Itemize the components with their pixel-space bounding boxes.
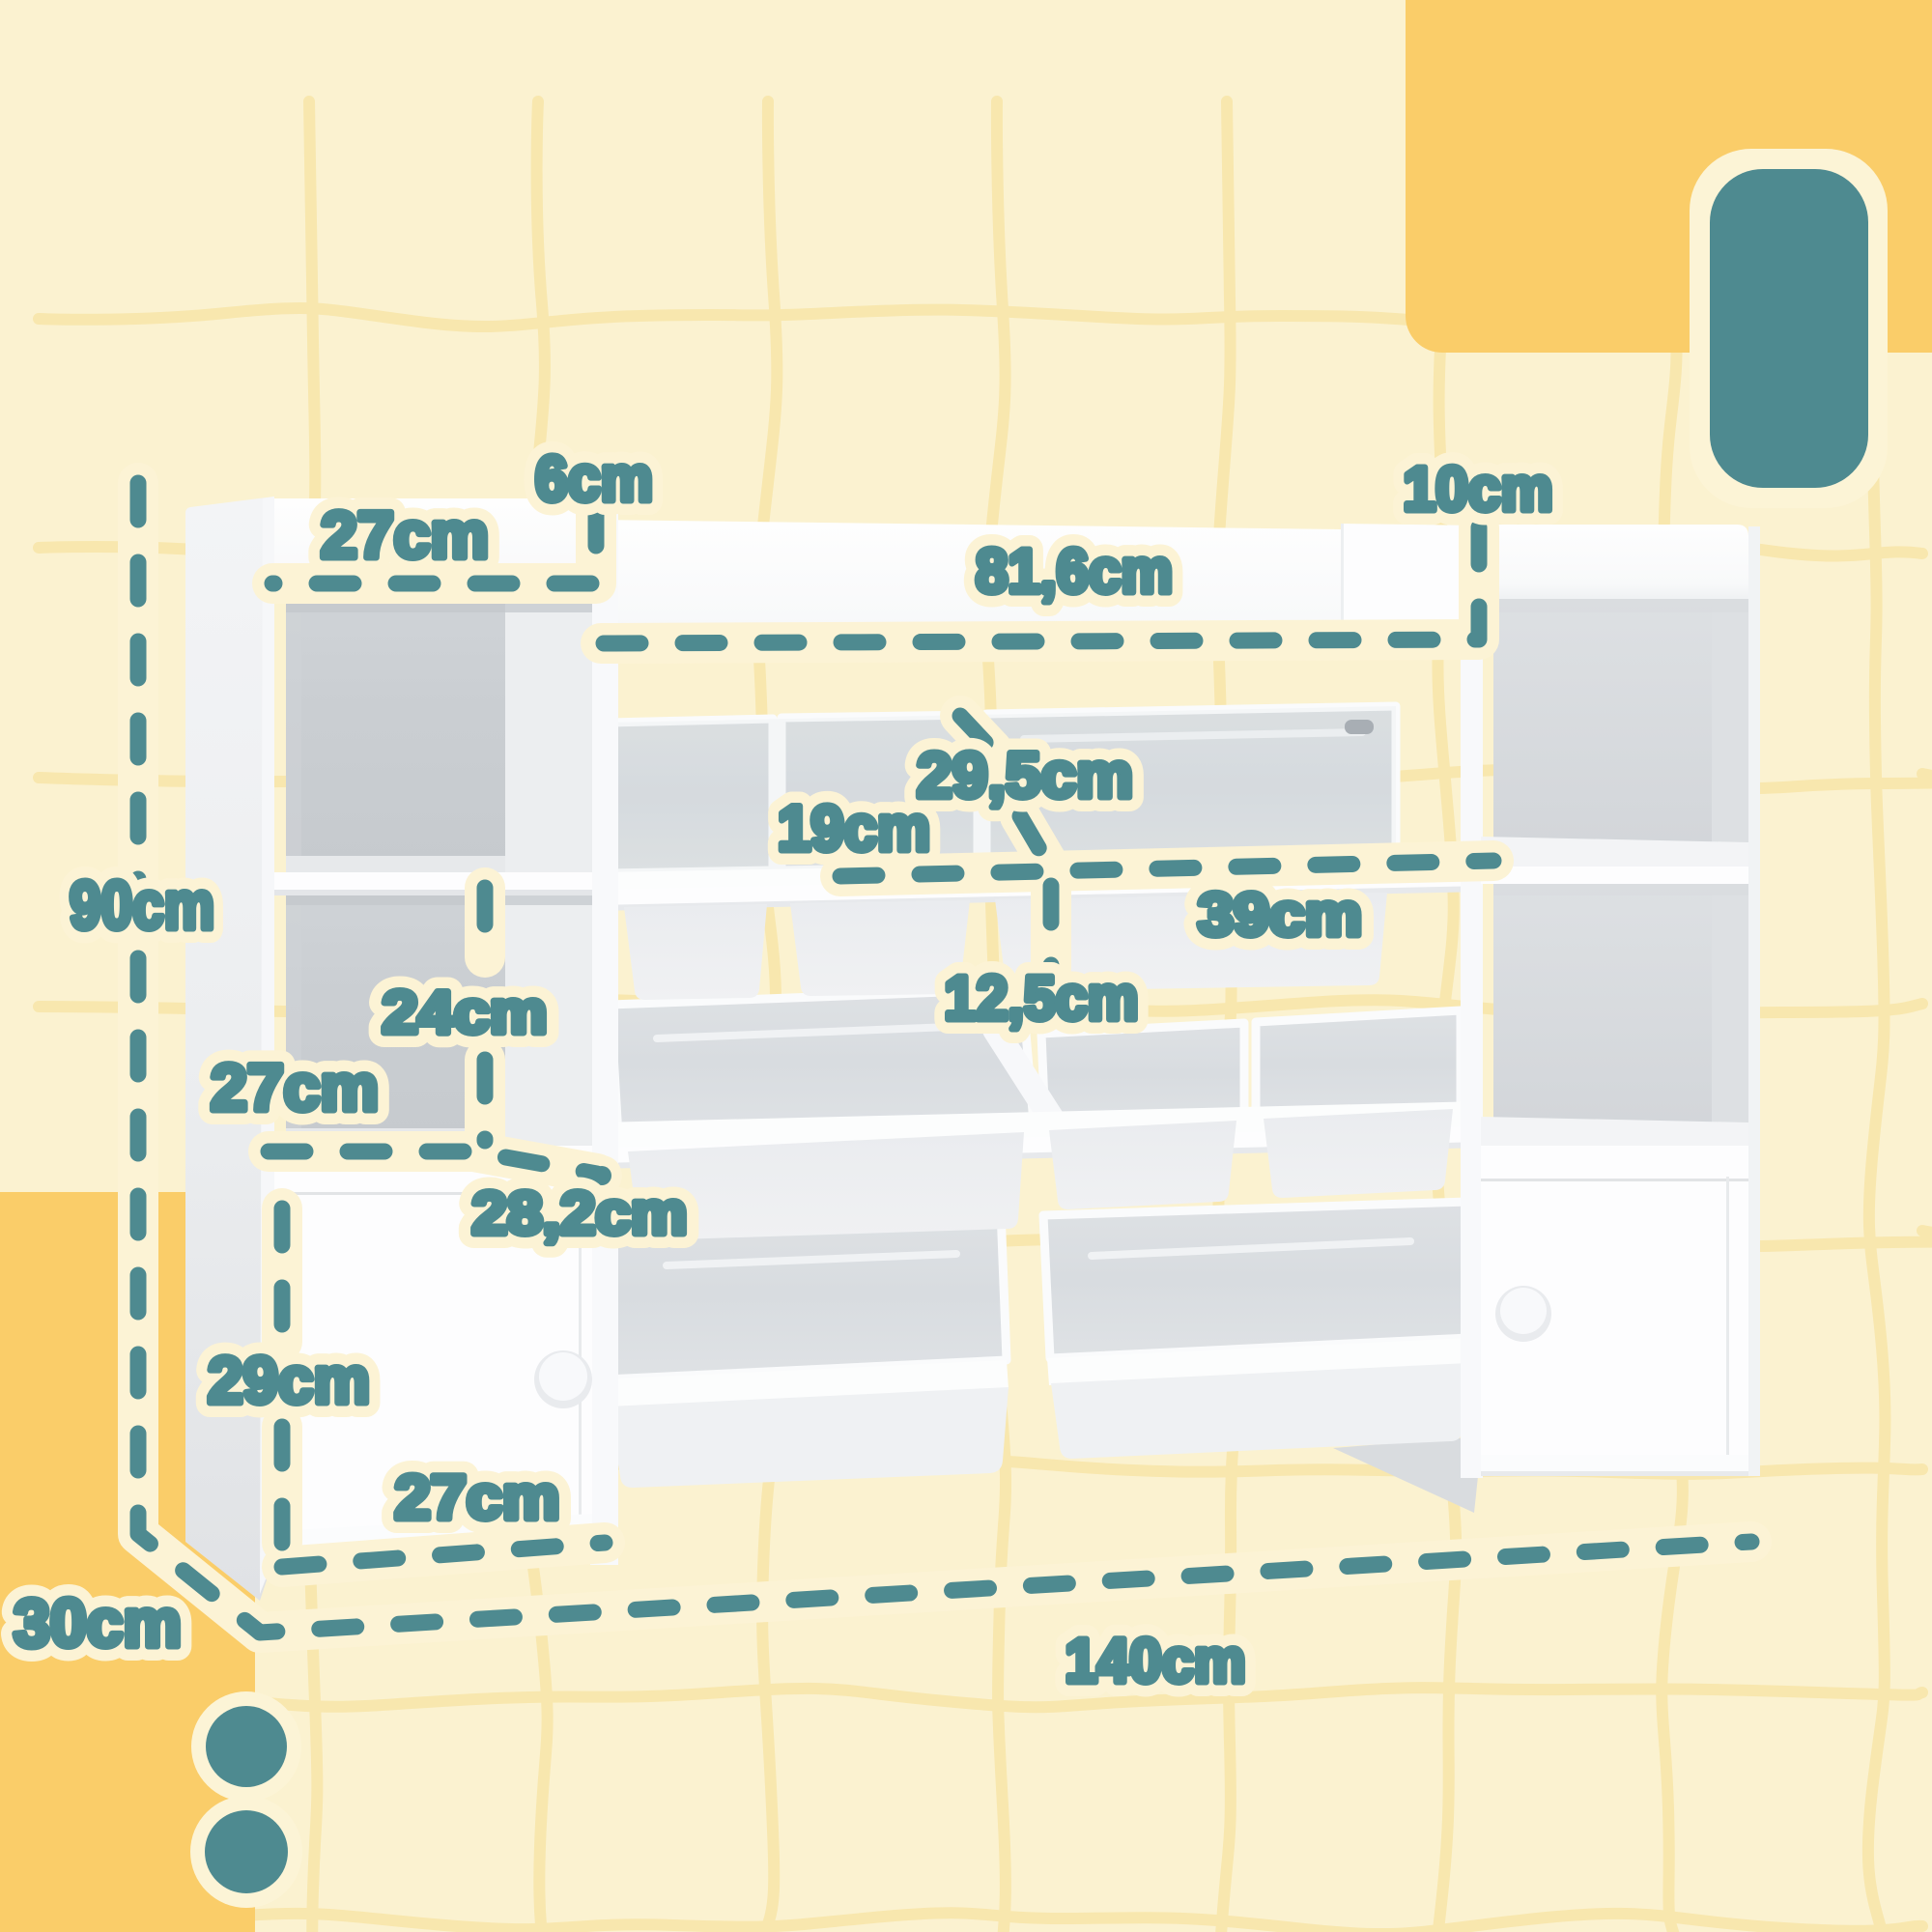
svg-text:29,5cm: 29,5cm	[917, 739, 1133, 810]
svg-text:81,6cm: 81,6cm	[976, 536, 1173, 606]
svg-text:27cm: 27cm	[321, 498, 489, 572]
svg-text:27cm: 27cm	[395, 1463, 560, 1532]
svg-text:140cm: 140cm	[1065, 1626, 1246, 1695]
svg-text:27cm: 27cm	[211, 1051, 379, 1124]
svg-text:39cm: 39cm	[1198, 882, 1362, 949]
svg-text:6cm: 6cm	[535, 442, 653, 514]
svg-text:90cm: 90cm	[70, 867, 214, 943]
svg-text:28,2cm: 28,2cm	[472, 1180, 688, 1247]
svg-text:12,5cm: 12,5cm	[945, 963, 1139, 1033]
svg-text:10cm: 10cm	[1404, 454, 1553, 524]
svg-text:24cm: 24cm	[383, 980, 548, 1046]
svg-text:30cm: 30cm	[14, 1585, 182, 1661]
svg-text:29cm: 29cm	[208, 1344, 370, 1417]
svg-text:19cm: 19cm	[778, 792, 930, 864]
